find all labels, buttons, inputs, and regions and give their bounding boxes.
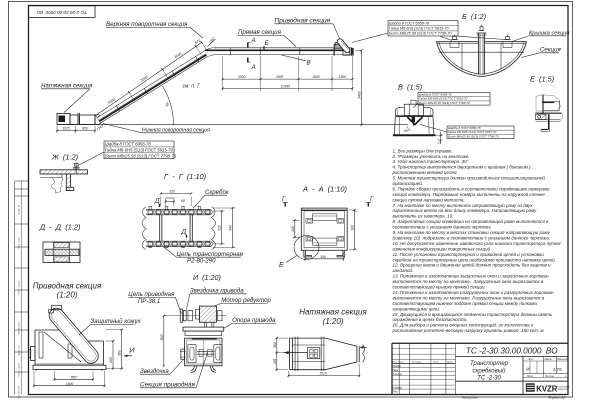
svg-text:Гайка М8-6Н5 (S13) ГОСТ 5915-7: Гайка М8-6Н5 (S13) ГОСТ 5915-70 [389, 27, 450, 31]
svg-text:8. Закрепление секций конвейер: 8. Закрепление секций конвейера на напра… [393, 218, 550, 224]
svg-text:Взам. инв.: Взам. инв. [19, 344, 21, 355]
svg-text:Секция приводная: Секция приводная [140, 381, 196, 389]
svg-text:Лист: Лист [526, 375, 533, 378]
svg-text:секций конвейера. Порядковые н: секций конвейера. Порядковые номера выпо… [393, 191, 546, 197]
svg-text:Пров.: Пров. [393, 369, 400, 372]
svg-text:Б: Б [265, 40, 270, 47]
svg-text:1515: 1515 [62, 127, 70, 131]
svg-text:80: 80 [181, 199, 185, 203]
svg-text:560: 560 [273, 342, 277, 348]
svg-text:Масса: Масса [545, 358, 553, 361]
svg-text:9. На монтаже по месту в места: 9. На монтаже по месту в местах стыковки… [393, 229, 551, 235]
svg-text:В: В [307, 61, 311, 67]
svg-text:расположением ветвей цепей.: расположением ветвей цепей. [392, 169, 458, 175]
svg-text:320: 320 [218, 225, 222, 231]
svg-text:3. Угол наклона транспортера: 3. Угол наклона транспортера 30°. [393, 159, 470, 164]
svg-text:Перв. прим.: Перв. прим. [19, 237, 21, 250]
svg-text:Д: Д [154, 198, 160, 205]
svg-text:Е (1:5): Е (1:5) [530, 75, 555, 84]
svg-text:изменения конфигурации поворот: изменения конфигурации поворотных секций… [393, 245, 493, 251]
svg-text:Гайка М8-6Н5 (S13) ГОСТ 5915-7: Гайка М8-6Н5 (S13) ГОСТ 5915-70 [105, 148, 173, 153]
svg-text:ТС -2-30.30.00.0000 ВО: ТС -2-30.30.00.0000 ВО [466, 347, 558, 356]
svg-text:14. Положения и изготовления р: 14. Положения и изготовления разгрузочны… [393, 290, 555, 295]
svg-text:Д - Д (1:2): Д - Д (1:2) [39, 223, 81, 232]
svg-text:Болт М8х25.58 (S13) ГОСТ 7798-: Болт М8х25.58 (S13) ГОСТ 7798-70 [448, 134, 499, 138]
svg-text:1515: 1515 [319, 372, 327, 376]
svg-text:Болт М8х25.58 (S13) ГОСТ 7798-: Болт М8х25.58 (S13) ГОСТ 7798-70 [419, 101, 470, 105]
svg-text:Болт М8х25.58 (S13) ГОСТ 7798-: Болт М8х25.58 (S13) ГОСТ 7798-70 [389, 32, 452, 36]
svg-text:Н.контр.: Н.контр. [393, 386, 403, 389]
svg-text:13. Положения и изготовления з: 13. Положения и изготовления загрузочных… [393, 274, 550, 279]
svg-text:скребковый: скребковый [473, 367, 507, 374]
svg-text:4. Транспортер выполняется дву: 4. Транспортер выполняется двухцепным с … [393, 164, 532, 170]
svg-text:см. п. 7: см. п. 7 [183, 84, 200, 90]
svg-text:соответствующей крышке прямой: соответствующей крышке прямой секции. [393, 284, 486, 290]
svg-text:6. Порядок сборки производить: 6. Порядок сборки производить в соответс… [393, 186, 551, 191]
svg-text:2660: 2660 [311, 75, 320, 79]
svg-text:расположения расчетно-весовую: расположения расчетно-весовую нагрузку п… [392, 327, 545, 333]
svg-text:секции путем наплавки металла.: секции путем наплавки металла. [393, 197, 465, 202]
svg-text:Подп. и дата: Подп. и дата [18, 362, 21, 376]
svg-text:1. Все размеры для справок.: 1. Все размеры для справок. [393, 148, 453, 153]
svg-text:направляющими цепи.: направляющими цепи. [393, 306, 440, 311]
svg-text:5. Монтаж транспортера должен: 5. Монтаж транспортера должен производит… [393, 175, 546, 181]
svg-text:Р2-80-290: Р2-80-290 [187, 258, 216, 265]
svg-text:340: 340 [320, 255, 326, 259]
svg-text:Подп.: Подп. [433, 361, 439, 364]
svg-text:Е: Е [279, 262, 284, 269]
svg-text:2. *Размеры уточнить на монтаж: 2. *Размеры уточнить на монтаже. [392, 154, 470, 159]
svg-text:Транспортер: Транспортер [470, 361, 509, 367]
svg-text:Дата: Дата [446, 362, 454, 364]
svg-text:ПР-38,1: ПР-38,1 [138, 298, 160, 305]
svg-text:Г - Г (1:10): Г - Г (1:10) [164, 172, 207, 181]
svg-text:И (1:20): И (1:20) [193, 273, 221, 282]
svg-text:3000: 3000 [276, 75, 284, 79]
svg-text:Масштаб: Масштаб [557, 358, 569, 361]
svg-text:Шайба 8 ГОСТ 6958-78: Шайба 8 ГОСТ 6958-78 [105, 142, 151, 147]
svg-text:организацией.: организацией. [393, 180, 424, 186]
svg-text:12. Вращение валов и движение: 12. Вращение валов и движение цепей долж… [393, 262, 552, 268]
svg-text:10. Не допускается изменение з: 10. Не допускается изменение заводского … [393, 241, 561, 246]
svg-text:А: А [251, 37, 256, 44]
svg-text:А: А [251, 64, 256, 71]
svg-text:10365: 10365 [281, 85, 290, 89]
svg-text:Разраб.: Разраб. [393, 365, 402, 368]
svg-text:7. На монтаже по месту выполни: 7. На монтаже по месту выполнить направл… [393, 203, 534, 208]
svg-text:выполняется по месту на монтаж: выполняется по месту на монтаже. Разгруз… [393, 295, 545, 300]
svg-text:200: 200 [291, 226, 295, 233]
svg-text:ТС-2-30.30.00.0000 ВО: ТС-2-30.30.00.0000 ВО [36, 10, 87, 15]
svg-text:KVZR: KVZR [536, 384, 558, 393]
svg-text:15. Движущиеся и вращающиеся э: 15. Движущиеся и вращающиеся элементы тр… [393, 312, 553, 317]
svg-text:Листов: Листов [544, 375, 554, 378]
svg-text:780*: 780* [71, 375, 79, 379]
svg-text:параллельных веток на всю длин: параллельных веток на всю длину конвейер… [393, 207, 538, 213]
svg-text:ТС -2-30: ТС -2-30 [477, 376, 501, 382]
svg-text:(1:20): (1:20) [57, 291, 78, 300]
svg-text:Ж (1:2): Ж (1:2) [51, 153, 79, 162]
svg-text:440: 440 [229, 225, 233, 231]
svg-text:(1:20): (1:20) [323, 317, 344, 326]
svg-text:1500: 1500 [66, 382, 74, 386]
svg-text:Приводная секция: Приводная секция [33, 282, 102, 291]
svg-text:5480: 5480 [357, 91, 361, 99]
svg-text:11. После установки транспорте: 11. После установки транспортерной и при… [393, 251, 545, 257]
svg-text:Подп. и дата: Подп. и дата [18, 280, 21, 294]
svg-text:выполняется по месту на монтаж: выполняется по месту на монтаже. Загрузо… [393, 279, 544, 284]
svg-text:Инв. № дубл.: Инв. № дубл. [18, 321, 21, 335]
svg-text:Болт М8х25.58 (S13) ГОСТ 7798-: Болт М8х25.58 (S13) ГОСТ 7798-70 [105, 153, 177, 158]
svg-text:Д: Д [181, 229, 187, 236]
svg-text:выполнить из швеллера 10.: выполнить из швеллера 10. [393, 214, 454, 219]
svg-text:1:75: 1:75 [553, 367, 562, 372]
svg-text:Утв.: Утв. [393, 391, 399, 394]
svg-text:320: 320 [169, 190, 175, 194]
svg-text:№ докум.: № докум. [412, 361, 422, 364]
svg-text:Приводная секция: Приводная секция [275, 17, 331, 25]
svg-text:1500: 1500 [339, 75, 347, 79]
svg-text:380: 380 [351, 225, 355, 231]
svg-text:(швеллер 10) подрезать в соот: (швеллер 10) подрезать в соответствии с … [393, 236, 550, 241]
svg-text:Справ. №: Справ. № [18, 204, 21, 215]
svg-text:Изм. Лист: Изм. Лист [393, 362, 404, 364]
svg-text:16. Для выбора и расчета опорн: 16. Для выбора и расчета опорных констру… [393, 322, 534, 328]
svg-text:Б (1:2): Б (1:2) [462, 12, 487, 21]
svg-text:Лит.: Лит. [527, 358, 534, 361]
svg-text:соответствии с указанием данно: соответствии с указанием данного чертежа… [393, 225, 492, 230]
svg-text:соответствующем нижнем поддоне: соответствующем нижнем поддоне прямой се… [393, 300, 538, 306]
svg-text:заеданий.: заеданий. [392, 267, 414, 273]
svg-text:255: 255 [273, 359, 277, 366]
svg-text:А - А (1:10): А - А (1:10) [302, 184, 347, 193]
svg-text:Инв. № подл.: Инв. № подл. [18, 385, 21, 399]
svg-text:4...6: 4...6 [437, 138, 441, 144]
svg-text:Формат А2: Формат А2 [548, 396, 566, 400]
svg-text:ЗАВОД РЗР: ЗАВОД РЗР [558, 388, 569, 391]
svg-text:В (1:5): В (1:5) [398, 83, 423, 92]
svg-text:3000: 3000 [238, 75, 246, 79]
svg-text:Шайба 8 ГОСТ 6958-78: Шайба 8 ГОСТ 6958-78 [389, 21, 430, 25]
svg-text:Т.контр.: Т.контр. [393, 373, 403, 376]
svg-text:265: 265 [109, 357, 113, 364]
svg-text:800*: 800* [160, 333, 164, 341]
svg-text:скребков на транспортерные цеп: скребков на транспортерные цепи необходи… [393, 256, 556, 262]
svg-text:Натяжная секция: Натяжная секция [299, 308, 367, 317]
svg-text:ограждения в целях безопасност: ограждения в целях безопасности. [393, 317, 468, 322]
svg-text:850: 850 [82, 127, 88, 131]
svg-text:560: 560 [118, 350, 122, 356]
svg-text:Копировал: Копировал [462, 396, 478, 400]
